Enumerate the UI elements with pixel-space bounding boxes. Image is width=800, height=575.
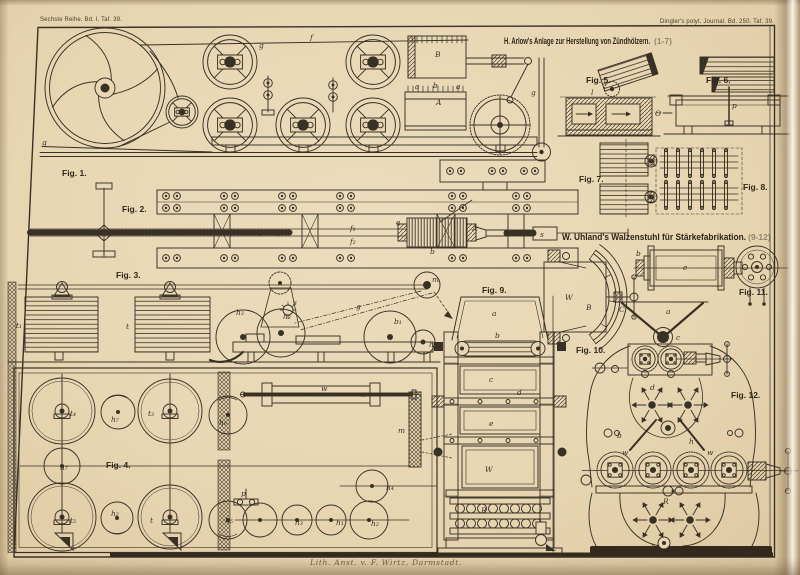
fig1-drawing: [40, 28, 551, 161]
part-label: w: [622, 448, 629, 457]
part-label: h₄: [386, 483, 394, 492]
part-label: a: [456, 82, 460, 91]
part-label: b: [430, 247, 435, 256]
part-label: Θ: [655, 109, 661, 118]
feed-box: [405, 86, 466, 130]
splint-row: [664, 180, 727, 209]
hopper: [408, 36, 532, 103]
part-label: p: [732, 101, 737, 110]
part-label: w: [707, 448, 714, 457]
part-label: b: [495, 331, 500, 340]
part-label: A: [435, 98, 442, 107]
part-label: e: [683, 263, 688, 272]
fig8-drawing: [656, 148, 742, 214]
part-label: f: [309, 33, 314, 42]
part-label: g: [42, 138, 47, 147]
fig5-label: Fig. 5.: [586, 75, 611, 85]
part-label: t: [150, 516, 154, 525]
part-label: f₂: [349, 237, 356, 246]
belt-run: [533, 58, 551, 161]
plate-drawing: Sechste Reihe. Bd. I. Taf. 39. Dingler's…: [0, 0, 800, 575]
fig7-drawing: [600, 139, 657, 218]
part-label: h₂: [283, 312, 291, 321]
part-label: C: [619, 305, 625, 314]
part-label: h₃: [236, 308, 244, 317]
part-label: a: [666, 307, 670, 316]
fig3-label: Fig. 3.: [116, 270, 141, 280]
part-label: m: [432, 275, 439, 284]
title-arlow: H. Arlow's Anlage zur Herstellung von Zü…: [504, 36, 650, 46]
part-label: R: [662, 497, 669, 506]
part-label: h₁: [336, 518, 344, 527]
part-label: b₁: [394, 317, 402, 326]
part-label: B: [585, 303, 592, 312]
fig10-label: Fig. 10.: [576, 345, 605, 355]
fig7-label: Fig. 7.: [579, 174, 604, 184]
part-label: f₁: [349, 224, 356, 233]
part-label: a: [492, 309, 496, 318]
fig6-drawing: [664, 57, 790, 134]
fig10-drawing: [544, 245, 638, 350]
fig1-label: Fig. 1.: [62, 168, 87, 178]
part-label: t: [126, 322, 130, 331]
part-label: g: [356, 302, 361, 311]
part-label: m: [398, 426, 405, 435]
lithographer-caption: Lith. Anst. v. F. Wirtz, Darmstadt.: [309, 559, 462, 567]
header-right: Dingler's polyt. Journal. Bd. 250. Taf. …: [660, 18, 774, 25]
part-label: s: [293, 298, 297, 307]
tension-post: [329, 78, 338, 112]
bearing-stand: [160, 282, 180, 300]
part-label: g: [531, 88, 536, 97]
title-arlow-range: (1-7): [654, 36, 672, 46]
part-label: W: [485, 465, 494, 474]
part-label: d: [517, 388, 522, 397]
rack-shaft: [30, 200, 628, 247]
part-label: p: [241, 489, 246, 498]
part-label: c: [676, 333, 681, 342]
part-label: t₄: [70, 409, 76, 418]
part-label: h: [429, 340, 434, 349]
part-label: h₆: [219, 418, 227, 427]
part-label: b: [433, 81, 438, 90]
part-label: b: [636, 249, 641, 258]
part-label: l: [591, 88, 594, 97]
title-uhland-range: (9-12): [748, 232, 771, 242]
scanned-plate-page: Sechste Reihe. Bd. I. Taf. 39. Dingler's…: [0, 0, 800, 575]
slat-stacks: [25, 297, 210, 360]
part-label: h₇: [60, 463, 68, 472]
part-label: c: [489, 375, 494, 384]
left-wall: [8, 282, 16, 553]
part-label: h: [689, 437, 694, 446]
fig12-drawing: [581, 302, 798, 554]
fig9-label: Fig. 9.: [482, 285, 507, 295]
part-label: g: [259, 41, 264, 50]
splint-row: [664, 148, 727, 177]
part-label: w: [321, 384, 328, 393]
fig11-label: Fig. 11.: [739, 287, 768, 297]
part-label: A: [471, 224, 478, 233]
part-label: d: [650, 383, 655, 392]
part-label: s: [540, 230, 544, 239]
part-label: t₁: [16, 321, 22, 330]
part-label: k: [651, 542, 656, 551]
pump-stand: [234, 489, 258, 505]
slide-mechanism: [240, 383, 420, 406]
fig2-label: Fig. 2.: [122, 204, 147, 214]
tension-post: [262, 76, 274, 115]
screw-post: [93, 183, 115, 257]
fig5-drawing: [558, 53, 672, 136]
part-label: h₂: [111, 509, 119, 518]
part-label: h₅: [225, 516, 233, 525]
fig12-label: Fig. 12.: [731, 390, 760, 400]
part-label: b: [617, 431, 622, 440]
part-label: t₃: [148, 409, 154, 418]
fig2-drawing: [30, 160, 628, 268]
part-label: W: [565, 293, 574, 302]
fig6-label: Fig. 6.: [706, 75, 731, 85]
part-label: e: [396, 218, 401, 227]
fig4-label: Fig. 4.: [106, 460, 131, 470]
part-label: h₃: [295, 518, 303, 527]
gear-wheel: [470, 95, 530, 155]
title-uhland: W. Uhland's Walzenstuhl für Stärkefabrik…: [562, 232, 746, 242]
part-label: t₅: [70, 516, 76, 525]
bearing-stand: [52, 282, 72, 300]
header-left: Sechste Reihe. Bd. I. Taf. 39.: [40, 16, 122, 23]
part-label: R: [480, 506, 487, 515]
part-label: e: [489, 419, 494, 428]
part-label: h₇: [111, 415, 119, 424]
part-label: h₂: [371, 519, 379, 528]
part-label: a: [415, 82, 419, 91]
part-label: B: [434, 50, 441, 59]
belt-bar: [409, 392, 421, 467]
fig8-label: Fig. 8.: [743, 182, 768, 192]
